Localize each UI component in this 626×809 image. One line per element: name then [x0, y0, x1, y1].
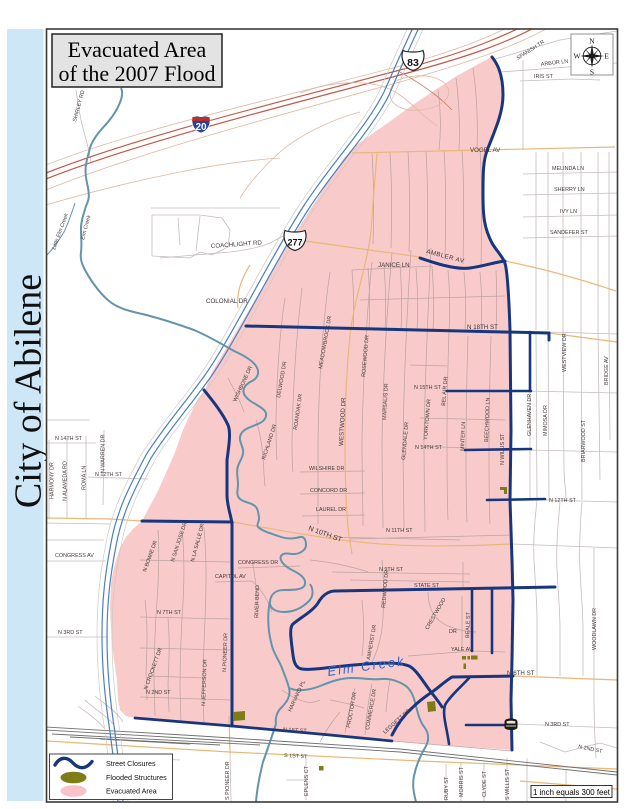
- svg-text:N 15TH ST: N 15TH ST: [414, 385, 442, 391]
- svg-text:N 12TH ST: N 12TH ST: [95, 472, 123, 478]
- svg-text:N 18TH ST: N 18TH ST: [467, 324, 498, 331]
- svg-text:N 6TH ST: N 6TH ST: [507, 670, 535, 677]
- svg-text:MINTER LN: MINTER LN: [460, 422, 467, 451]
- svg-text:S 1ST ST: S 1ST ST: [284, 753, 308, 760]
- svg-text:WESTVIEW DR: WESTVIEW DR: [562, 333, 568, 372]
- svg-text:N WILLIS ST: N WILLIS ST: [500, 433, 506, 465]
- svg-text:IRIS ST: IRIS ST: [534, 74, 554, 80]
- svg-text:HARMONY DR: HARMONY DR: [50, 462, 56, 499]
- svg-text:STATE ST: STATE ST: [414, 583, 440, 589]
- svg-text:N 14TH ST: N 14TH ST: [55, 436, 83, 442]
- svg-text:N 14TH ST: N 14TH ST: [415, 445, 443, 451]
- svg-text:S WILLIS ST: S WILLIS ST: [505, 768, 511, 800]
- svg-text:LAUREL DR: LAUREL DR: [316, 507, 346, 513]
- svg-text:N 11TH ST: N 11TH ST: [386, 528, 413, 534]
- svg-text:SHERRY LN: SHERRY LN: [554, 187, 585, 193]
- svg-text:YALE AV: YALE AV: [451, 647, 473, 653]
- svg-text:of the 2007 Flood: of the 2007 Flood: [58, 61, 215, 86]
- svg-text:RUBY ST: RUBY ST: [444, 776, 450, 800]
- svg-text:N 3RD ST: N 3RD ST: [545, 722, 570, 728]
- svg-text:S PIONEER DR: S PIONEER DR: [225, 761, 231, 800]
- svg-text:Street Closures: Street Closures: [106, 759, 156, 768]
- svg-text:CAPITOL AV: CAPITOL AV: [215, 574, 246, 580]
- svg-text:83: 83: [407, 57, 419, 69]
- svg-text:E: E: [604, 52, 609, 61]
- svg-text:N 9TH ST: N 9TH ST: [379, 567, 404, 573]
- svg-text:SANDEFER ST: SANDEFER ST: [550, 230, 588, 236]
- svg-text:BRIARWOOD ST: BRIARWOOD ST: [581, 419, 587, 462]
- svg-text:WILSHIRE DR: WILSHIRE DR: [309, 466, 344, 472]
- svg-text:CONCORD DR: CONCORD DR: [310, 488, 347, 494]
- svg-text:GLENHAVEN DR: GLENHAVEN DR: [527, 394, 533, 436]
- svg-text:N ALAMEDA RD: N ALAMEDA RD: [63, 461, 69, 501]
- svg-text:Flooded Structures: Flooded Structures: [106, 773, 167, 782]
- svg-text:VOGEL AV: VOGEL AV: [470, 147, 501, 154]
- svg-text:City of Abilene: City of Abilene: [8, 274, 50, 508]
- svg-text:W: W: [573, 52, 581, 61]
- svg-text:ROMA LN: ROMA LN: [82, 466, 88, 490]
- svg-text:N WARREN DR: N WARREN DR: [101, 434, 107, 473]
- svg-text:EPLENS CT: EPLENS CT: [304, 765, 310, 796]
- svg-text:BRIDGE AV: BRIDGE AV: [604, 356, 610, 385]
- svg-text:COLONIAL DR: COLONIAL DR: [206, 298, 248, 305]
- svg-text:277: 277: [287, 238, 302, 248]
- svg-text:WOODLAWN DR: WOODLAWN DR: [592, 608, 598, 650]
- svg-text:MELINDA LN: MELINDA LN: [552, 166, 584, 172]
- svg-text:RIVER BEND: RIVER BEND: [254, 585, 261, 618]
- svg-text:CONGRESS AV: CONGRESS AV: [55, 553, 94, 559]
- svg-text:CONGRESS DR: CONGRESS DR: [238, 560, 278, 566]
- svg-text:20: 20: [195, 122, 207, 133]
- svg-text:JANICE LN: JANICE LN: [378, 262, 410, 269]
- svg-text:N 7TH ST: N 7TH ST: [157, 610, 182, 616]
- svg-text:N 2ND ST: N 2ND ST: [146, 690, 171, 696]
- svg-text:S: S: [590, 68, 594, 77]
- svg-text:N: N: [589, 37, 595, 46]
- svg-text:MORRIS ST: MORRIS ST: [459, 766, 465, 797]
- svg-text:Evacuated Area: Evacuated Area: [106, 787, 157, 796]
- svg-text:N 3RD ST: N 3RD ST: [58, 630, 83, 636]
- svg-text:MIMOSA DR: MIMOSA DR: [543, 405, 549, 436]
- svg-text:BEALE ST: BEALE ST: [465, 611, 472, 638]
- svg-text:IVY LN: IVY LN: [560, 209, 577, 215]
- svg-text:Evacuated Area: Evacuated Area: [68, 37, 207, 62]
- svg-text:CLYDE ST: CLYDE ST: [482, 770, 488, 797]
- svg-text:N 12TH ST: N 12TH ST: [549, 498, 577, 504]
- svg-text:1 inch equals 300 feet: 1 inch equals 300 feet: [533, 787, 611, 797]
- svg-text:DR: DR: [449, 629, 457, 635]
